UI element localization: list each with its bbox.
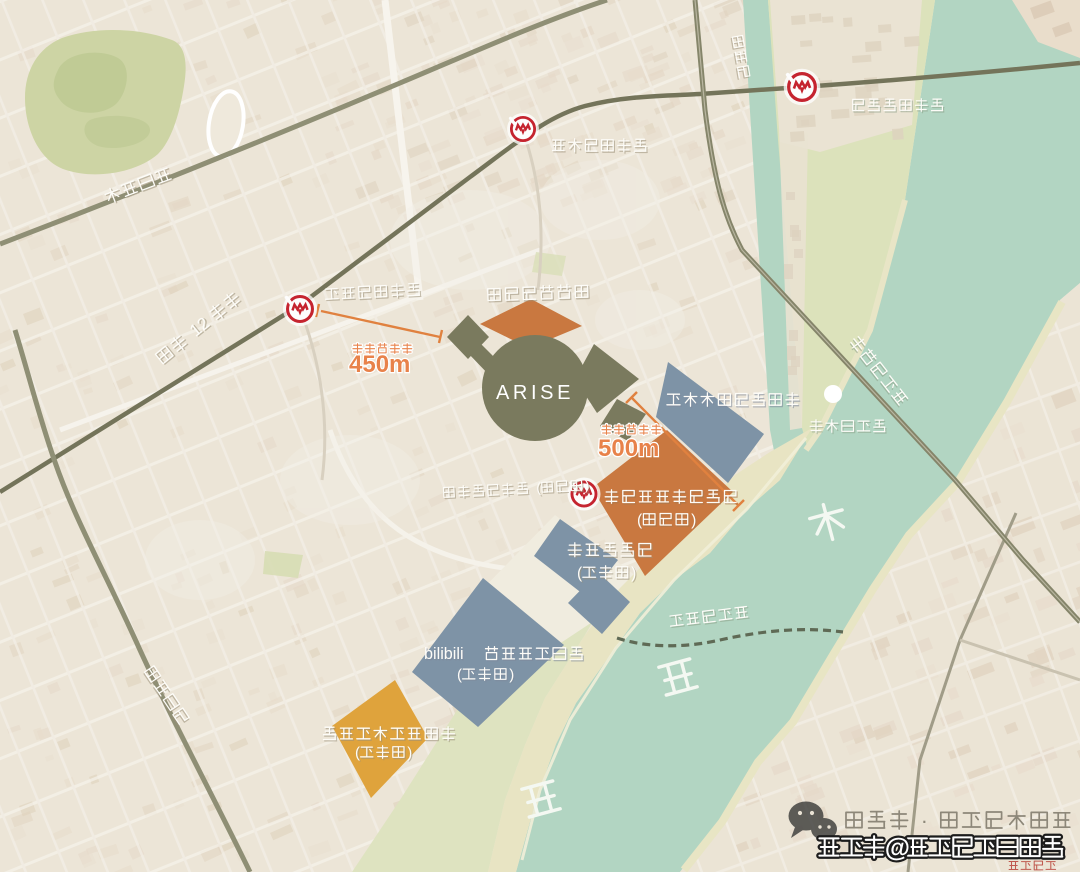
svg-text:@: @: [885, 834, 910, 862]
svg-text:): ): [509, 666, 514, 683]
svg-text:(: (: [577, 565, 583, 582]
svg-text:ARISE: ARISE: [496, 382, 574, 404]
svg-text:): ): [407, 744, 412, 761]
svg-text:): ): [631, 565, 636, 582]
svg-text:(: (: [355, 744, 360, 761]
svg-text:·: ·: [921, 808, 928, 833]
svg-text:bilibili: bilibili: [424, 645, 464, 663]
svg-text:450m: 450m: [349, 351, 410, 378]
svg-text:(: (: [457, 666, 462, 683]
svg-text:): ): [584, 477, 590, 493]
svg-text:(: (: [637, 512, 643, 529]
svg-text:): ): [691, 512, 696, 529]
svg-text:500m: 500m: [598, 435, 659, 462]
